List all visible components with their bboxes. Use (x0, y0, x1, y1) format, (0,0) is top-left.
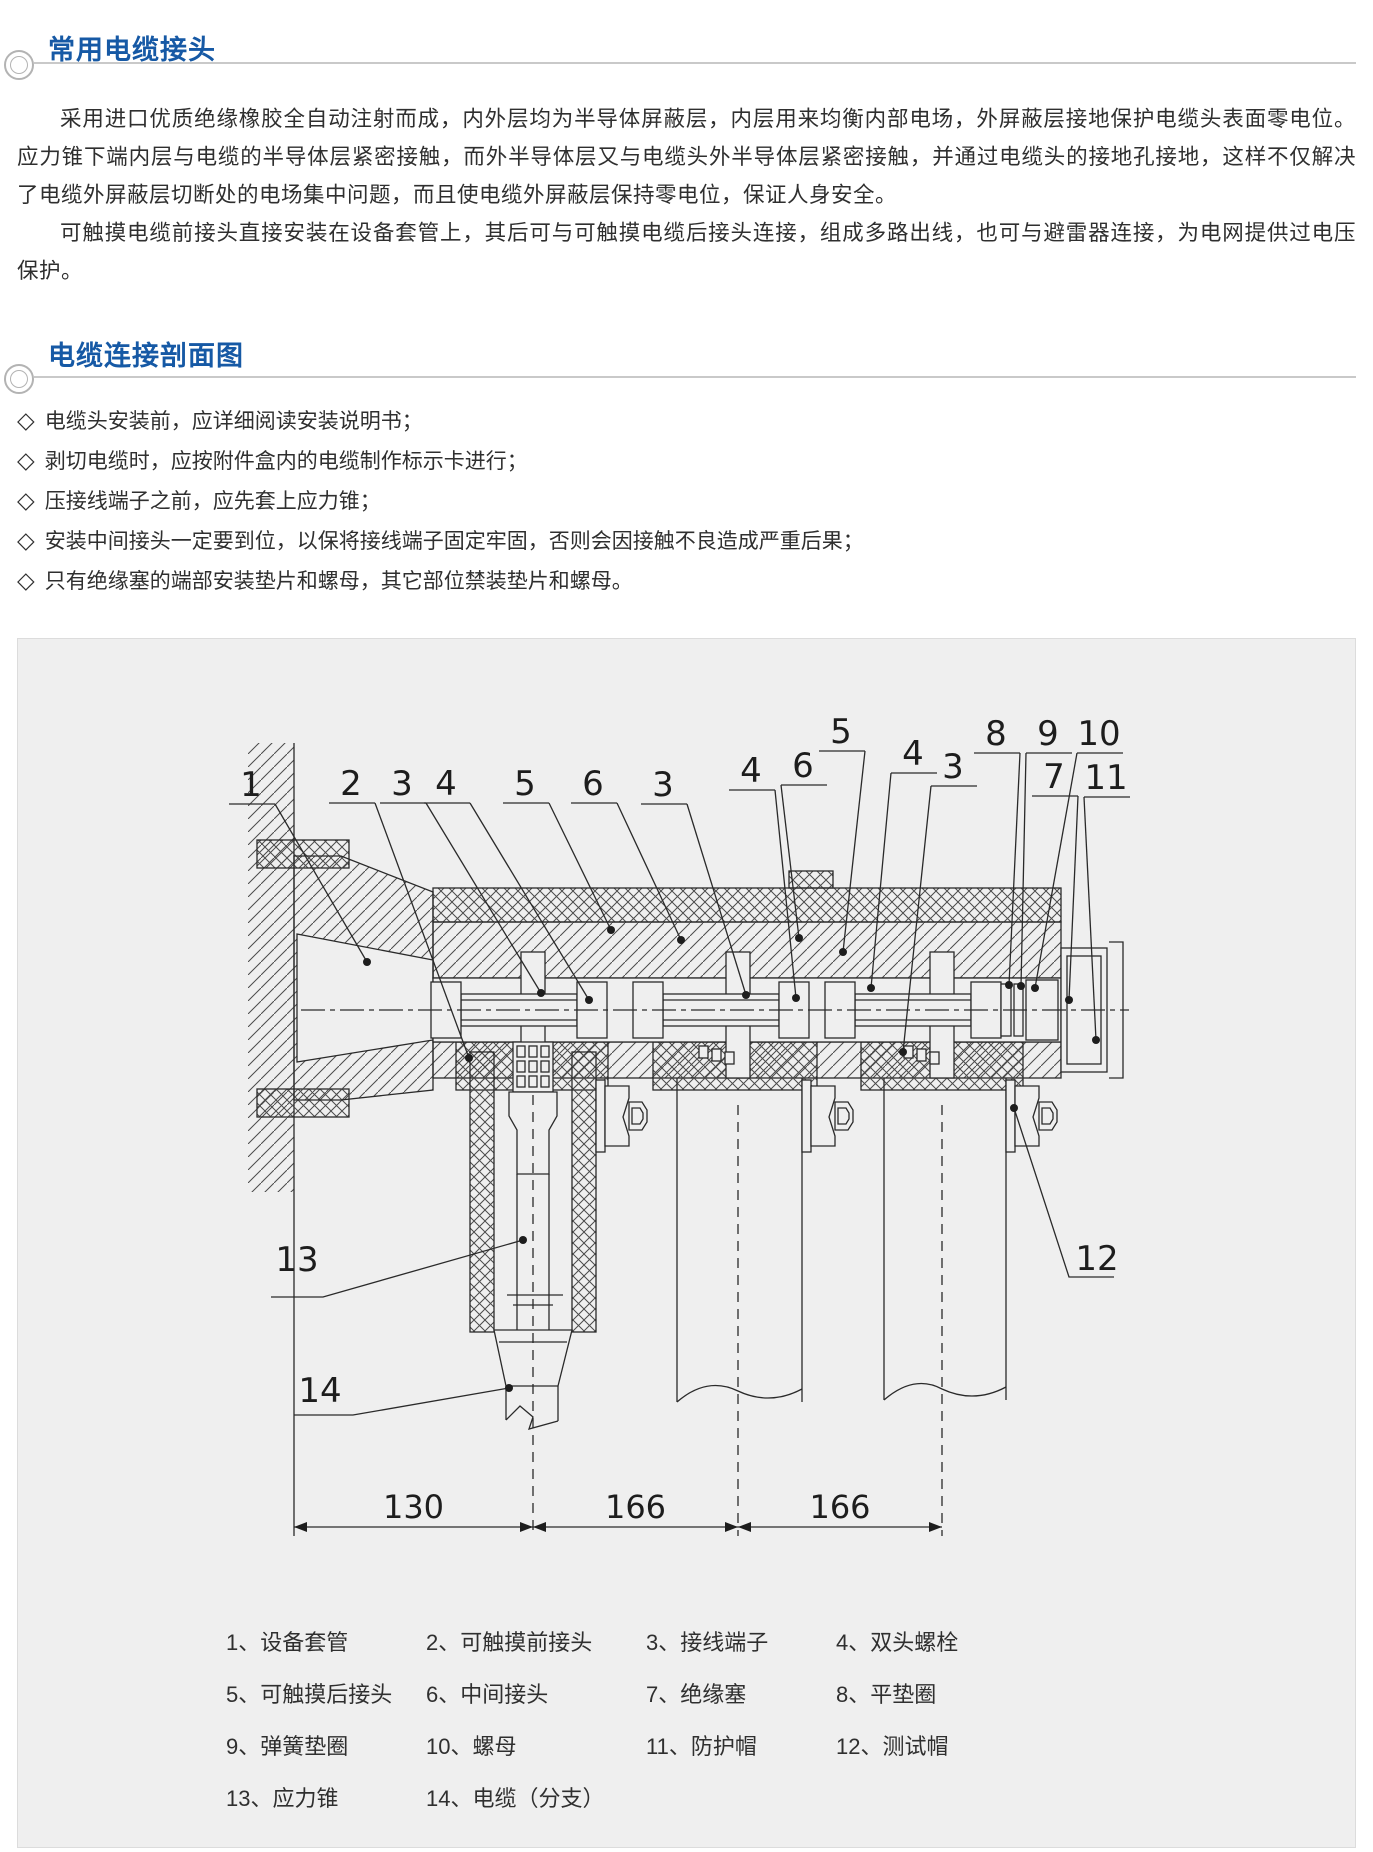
wall-hatch (248, 743, 294, 1192)
callout-number: 10 (1077, 714, 1120, 754)
callout-dot (839, 948, 847, 956)
callout-dot (537, 989, 545, 997)
branch-break-end (884, 1384, 1006, 1400)
callout-number: 8 (985, 714, 1007, 754)
callout-number: 12 (1075, 1239, 1118, 1279)
legend-item: 3、接线端子 (646, 1625, 836, 1677)
legend-item: 8、平垫圈 (836, 1677, 1036, 1729)
callout-dot (899, 1048, 907, 1056)
callout-number: 3 (942, 747, 964, 787)
callout-dot (1092, 1036, 1100, 1044)
callout-number: 7 (1043, 757, 1065, 797)
dim-arrow (725, 1522, 738, 1532)
dim-arrow (929, 1522, 942, 1532)
legend-item: 9、弹簧垫圈 (226, 1729, 426, 1781)
dim-arrow (738, 1522, 751, 1532)
section-divider (34, 376, 1356, 378)
legend-item: 12、测试帽 (836, 1729, 1036, 1781)
callout-number: 3 (652, 765, 674, 805)
callout-dot (742, 991, 750, 999)
callout-dot (677, 936, 685, 944)
legend-item: 5、可触摸后接头 (226, 1677, 426, 1729)
rule-ornament-icon (4, 364, 34, 394)
crimp-terminal (513, 1042, 553, 1092)
paragraph: 可触摸电缆前接头直接安装在设备套管上，其后可与可触摸电缆后接头连接，组成多路出线… (17, 214, 1356, 290)
dim-arrow (294, 1522, 307, 1532)
shield-detail (699, 1046, 708, 1058)
paragraph: 采用进口优质绝缘橡胶全自动注射而成，内外层均为半导体屏蔽层，内层用来均衡内部电场… (17, 100, 1356, 214)
dim-arrow (520, 1522, 533, 1532)
callout-number: 1 (240, 765, 262, 805)
callout-dot (607, 926, 615, 934)
outer-screen-tab (789, 871, 833, 888)
dim-label: 166 (809, 1488, 870, 1526)
shield-detail (712, 1049, 721, 1061)
diamond-bullet-icon: ◇ (17, 409, 35, 432)
callout-dot (1017, 982, 1025, 990)
dim-arrow (533, 1522, 546, 1532)
legend-item: 1、设备套管 (226, 1625, 426, 1677)
diamond-bullet-icon: ◇ (17, 569, 35, 592)
legend-item: 7、绝缘塞 (646, 1677, 836, 1729)
callout-dot (792, 994, 800, 1002)
callout-number: 4 (902, 734, 924, 774)
callout-dot (1010, 1104, 1018, 1112)
diagram-panel: 1234563465438910711121314130166166 1、设备套… (17, 638, 1356, 1848)
diamond-bullet-icon: ◇ (17, 489, 35, 512)
callout-number: 6 (582, 764, 604, 804)
callout-dot (1031, 984, 1039, 992)
list-item-text: 安装中间接头一定要到位，以保将接线端子固定牢固，否则会因接触不良造成严重后果； (45, 525, 864, 555)
list-item-text: 只有绝缘塞的端部安装垫片和螺母，其它部位禁装垫片和螺母。 (45, 565, 633, 595)
legend-item: 2、可触摸前接头 (426, 1625, 646, 1677)
list-item-text: 压接线端子之前，应先套上应力锥； (45, 485, 381, 515)
callout-dot (1005, 981, 1013, 989)
dim-label: 166 (605, 1488, 666, 1526)
callout-number: 9 (1037, 714, 1059, 754)
legend-item: 4、双头螺栓 (836, 1625, 1036, 1677)
callout-dot (867, 984, 875, 992)
legend-item: 11、防护帽 (646, 1729, 836, 1781)
diamond-bullet-icon: ◇ (17, 449, 35, 472)
list-item: ◇ 只有绝缘塞的端部安装垫片和螺母，其它部位禁装垫片和螺母。 (17, 560, 1356, 600)
cable-break-end (506, 1406, 558, 1429)
stress-cone-wall (572, 1052, 596, 1332)
diamond-bullet-icon: ◇ (17, 529, 35, 552)
callout-number: 5 (830, 712, 852, 752)
branch-break-end (677, 1386, 802, 1402)
test-cap (1006, 1080, 1057, 1152)
legend-item: 6、中间接头 (426, 1677, 646, 1729)
installation-notes-list: ◇ 电缆头安装前，应详细阅读安装说明书； ◇ 剥切电缆时，应按附件盒内的电缆制作… (17, 400, 1356, 600)
callout-dot (465, 1054, 473, 1062)
callout-dot (585, 996, 593, 1004)
callout-dot (795, 934, 803, 942)
callout-number: 14 (298, 1371, 341, 1411)
rule-ornament-icon (4, 50, 34, 80)
drawing-annotations: 1234563465438910711121314130166166 (229, 712, 1130, 1532)
callout-number: 2 (340, 764, 362, 804)
list-item-text: 电缆头安装前，应详细阅读安装说明书； (45, 405, 423, 435)
section-title-cable-section-view: 电缆连接剖面图 (48, 334, 244, 373)
stress-cone-wall (470, 1052, 494, 1332)
intro-paragraphs: 采用进口优质绝缘橡胶全自动注射而成，内外层均为半导体屏蔽层，内层用来均衡内部电场… (17, 100, 1356, 290)
callout-number: 4 (740, 751, 762, 791)
test-cap (802, 1080, 853, 1152)
shield-detail (917, 1049, 926, 1061)
callout-dot (505, 1384, 513, 1392)
shield-detail (930, 1052, 939, 1064)
outer-screen-band (433, 888, 1061, 922)
callout-number: 3 (391, 764, 413, 804)
dim-label: 130 (383, 1488, 444, 1526)
legend-item: 14、电缆（分支） (426, 1781, 646, 1833)
callout-dot (519, 1236, 527, 1244)
callout-number: 5 (514, 764, 536, 804)
list-item: ◇ 安装中间接头一定要到位，以保将接线端子固定牢固，否则会因接触不良造成严重后果… (17, 520, 1356, 560)
list-item: ◇ 压接线端子之前，应先套上应力锥； (17, 480, 1356, 520)
list-item-text: 剥切电缆时，应按附件盒内的电缆制作标示卡进行； (45, 445, 528, 475)
callout-number: 4 (435, 764, 457, 804)
callout-dot (1065, 996, 1073, 1004)
callout-number: 6 (792, 746, 814, 786)
callout-number: 13 (275, 1240, 318, 1280)
list-item: ◇ 剥切电缆时，应按附件盒内的电缆制作标示卡进行； (17, 440, 1356, 480)
legend-item: 13、应力锥 (226, 1781, 426, 1833)
section-divider (34, 62, 1356, 64)
catalog-page: { "colors":{"accent":"#1659a5","rule":"#… (0, 0, 1373, 1848)
parts-legend: 1、设备套管2、可触摸前接头3、接线端子4、双头螺栓5、可触摸后接头6、中间接头… (226, 1625, 1036, 1833)
test-cap (596, 1080, 647, 1152)
legend-item: 10、螺母 (426, 1729, 646, 1781)
callout-dot (363, 958, 371, 966)
callout-number: 11 (1084, 758, 1127, 798)
shield-detail (725, 1052, 734, 1064)
list-item: ◇ 电缆头安装前，应详细阅读安装说明书； (17, 400, 1356, 440)
